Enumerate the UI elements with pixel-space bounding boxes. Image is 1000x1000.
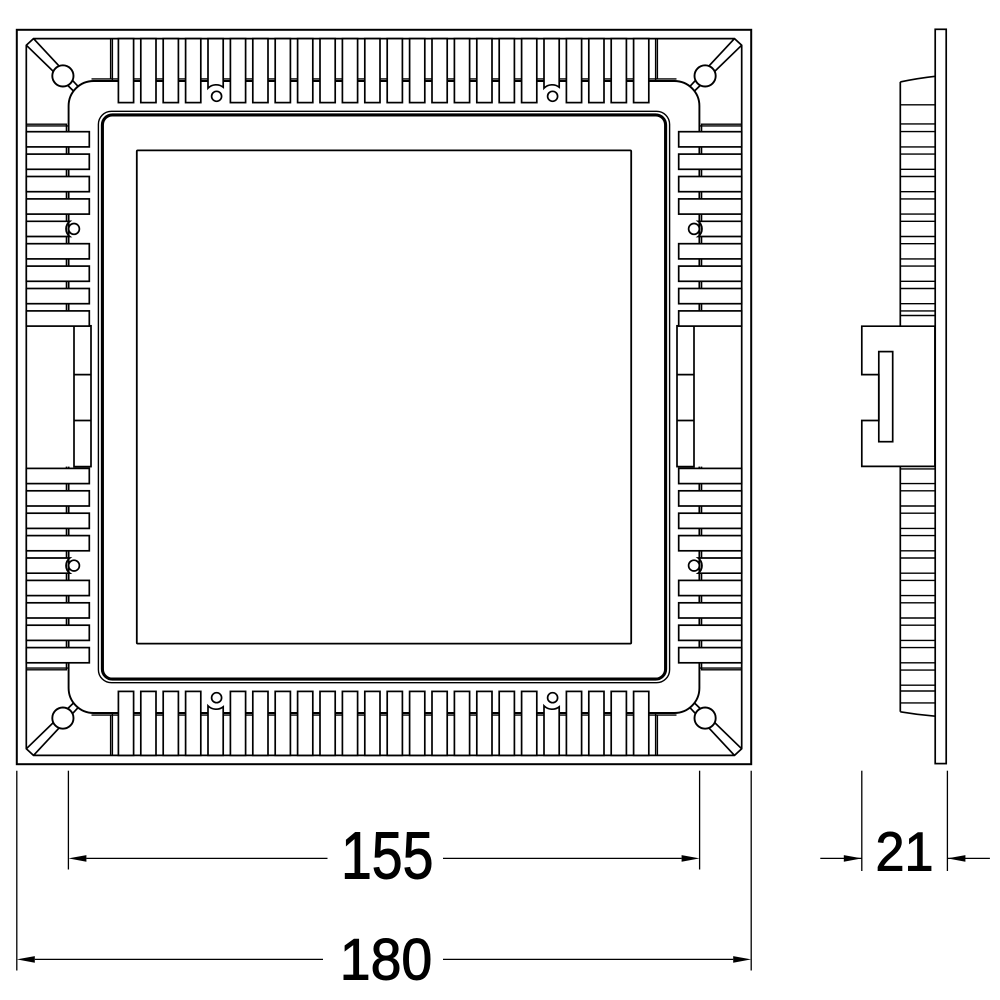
svg-text:180: 180 [340,928,433,993]
svg-text:155: 155 [341,820,434,894]
svg-text:21: 21 [876,820,934,882]
